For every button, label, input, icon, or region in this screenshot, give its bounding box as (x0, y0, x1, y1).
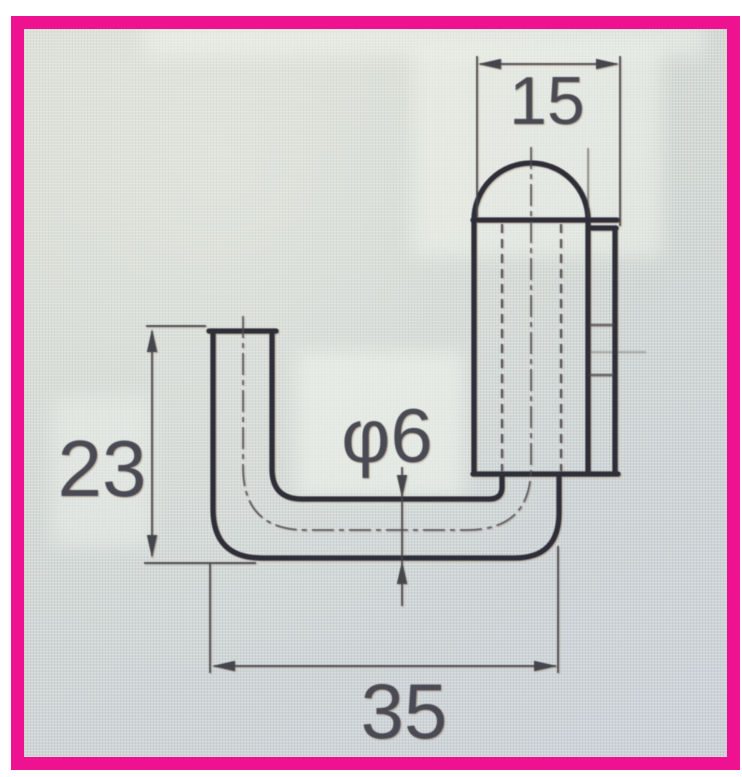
screenshot-photo: 15 23 φ6 35 (0, 0, 742, 777)
arrowhead-left (212, 661, 235, 671)
dimension-base-length: 35 (210, 546, 558, 755)
dimension-label-15: 15 (509, 63, 585, 139)
dimension-cap-width: 15 (477, 56, 620, 226)
dimension-label-dia6: φ6 (341, 394, 433, 479)
technical-drawing: 15 23 φ6 35 (0, 0, 742, 777)
arrowhead-right (596, 59, 619, 69)
arrowhead-right (534, 661, 557, 671)
arrowhead-bottom (147, 535, 157, 558)
dimension-label-35: 35 (361, 667, 448, 755)
dimension-label-23: 23 (58, 424, 147, 513)
dimension-arm-height: 23 (58, 326, 256, 563)
arrowhead-up (397, 561, 407, 584)
arrowhead-top (147, 329, 157, 352)
arrowhead-left (478, 59, 501, 69)
part-outline (209, 163, 618, 558)
